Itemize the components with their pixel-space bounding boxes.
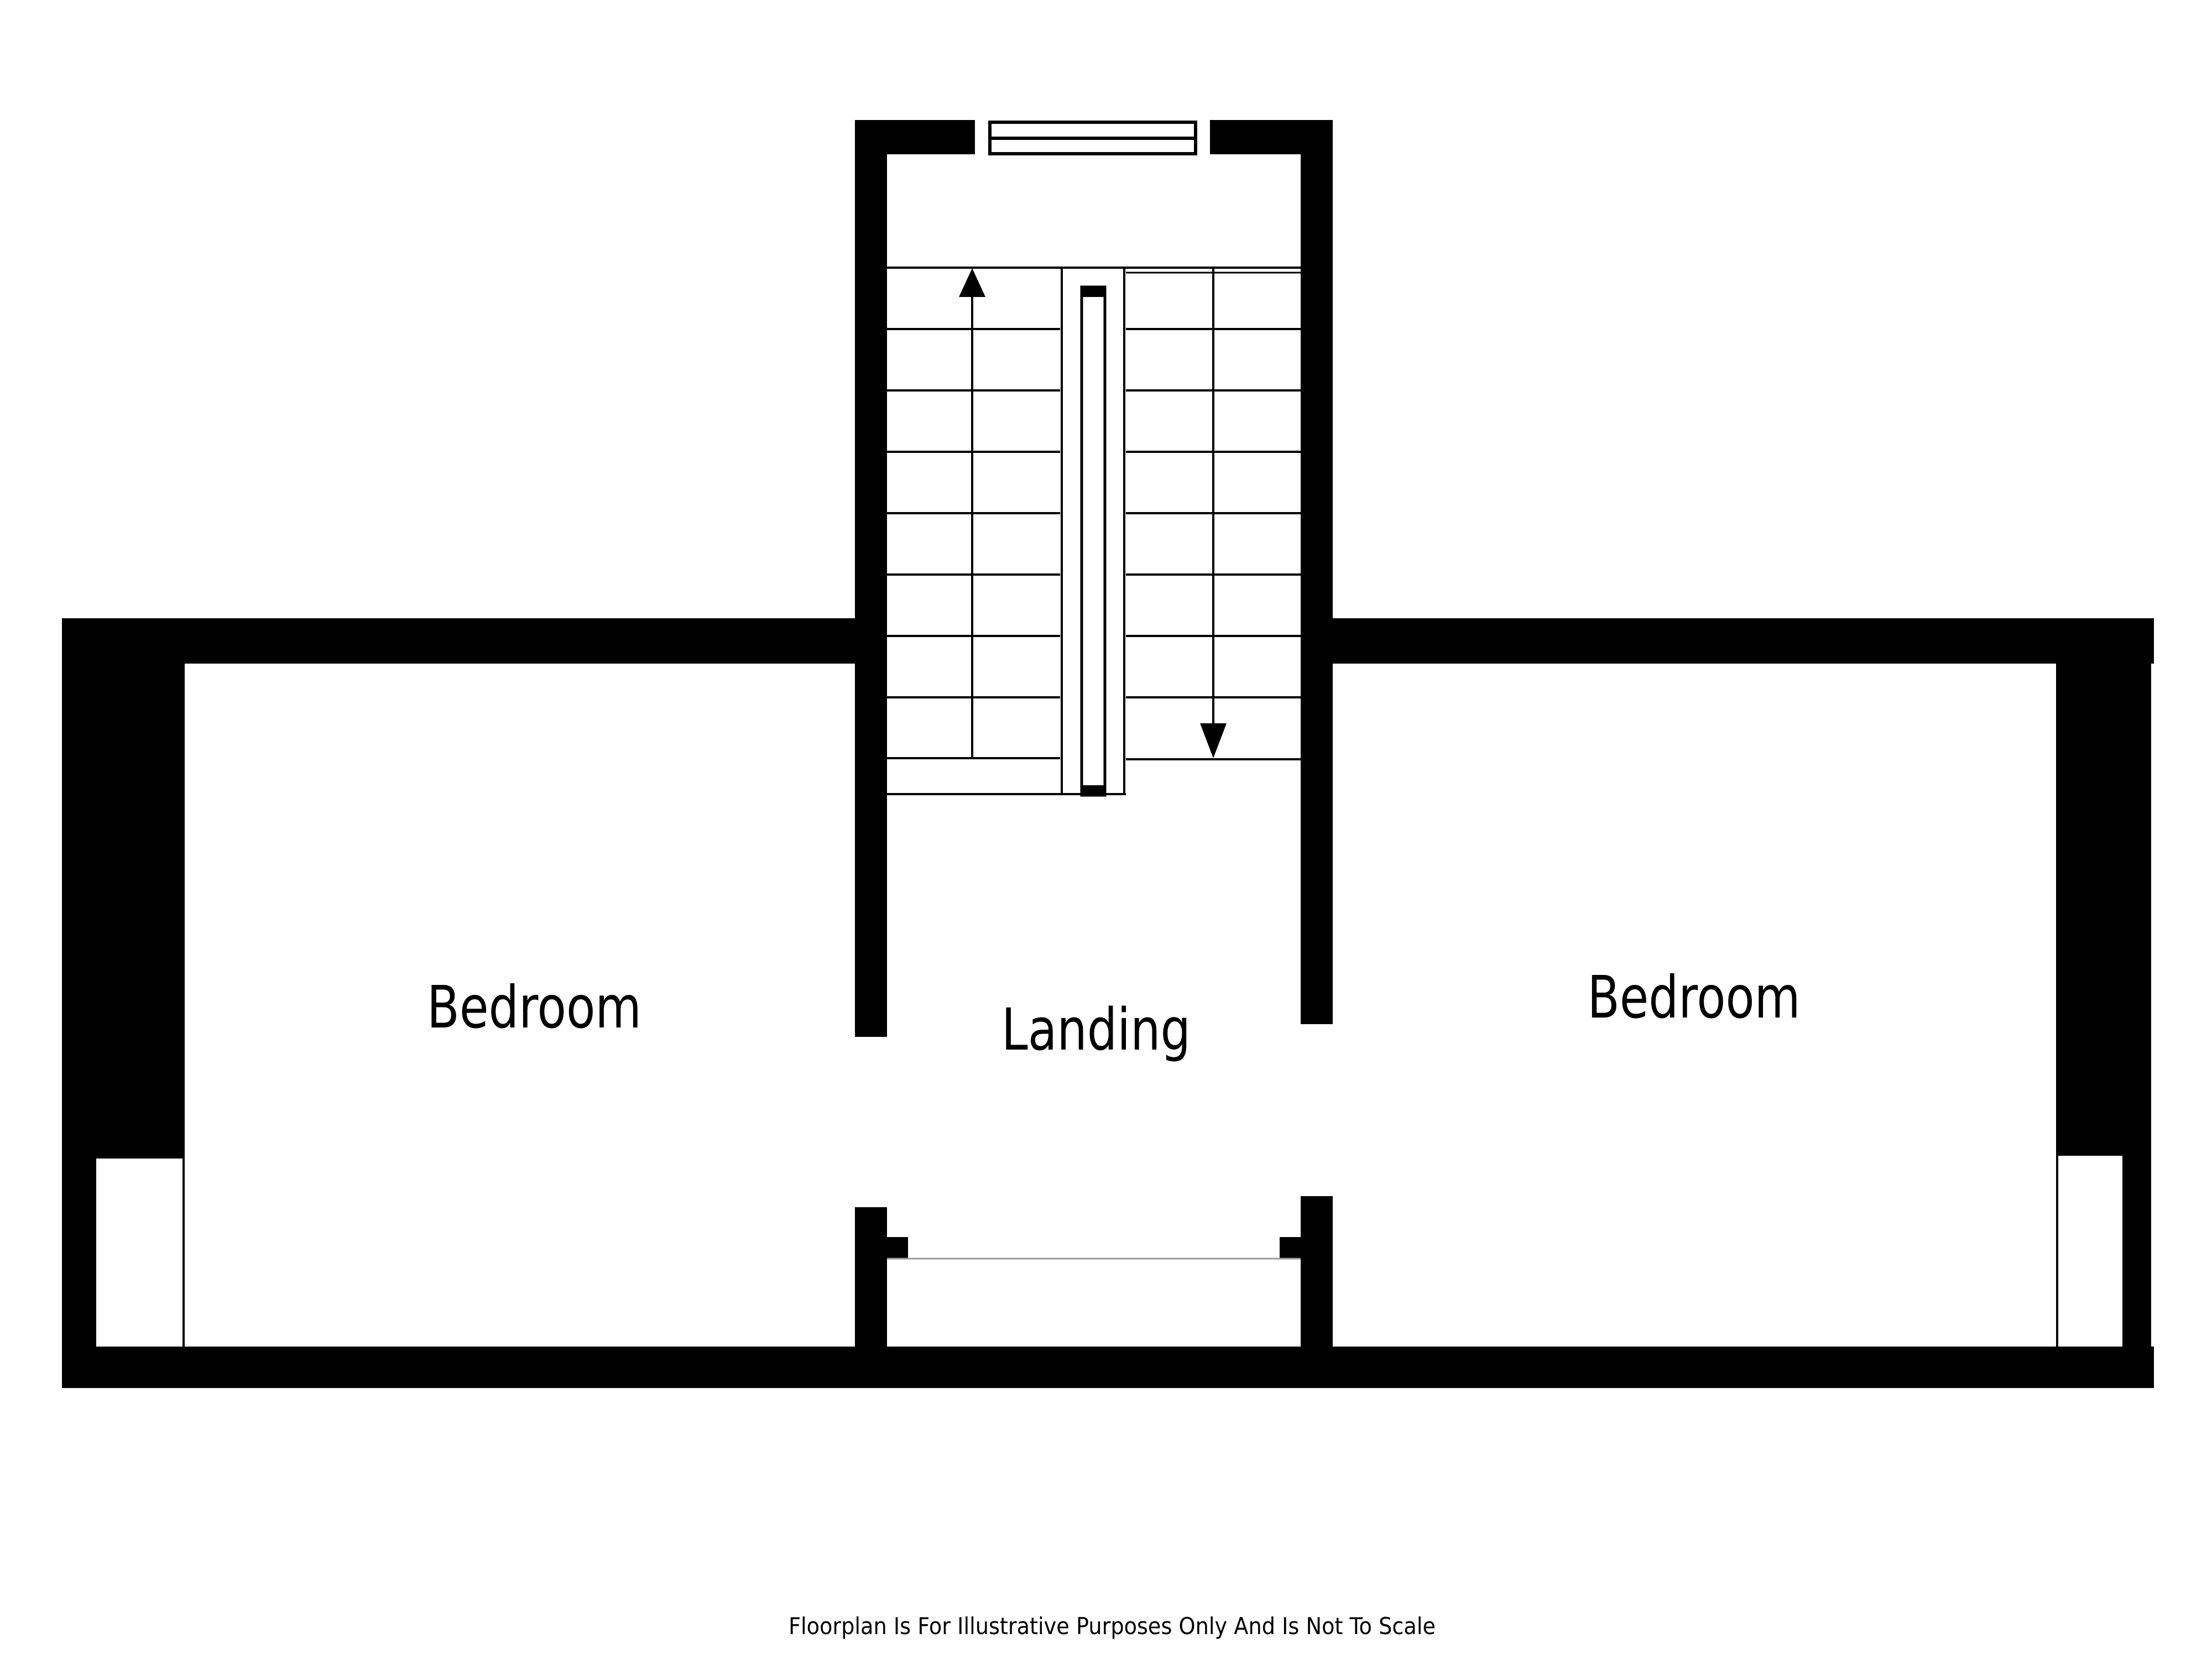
floorplan-canvas: Bedroom Landing Bedroom Floorplan Is For… [0, 0, 2212, 1659]
handrail-cap-top [1082, 287, 1105, 297]
door-jamb-tab-left [887, 1237, 908, 1259]
door-jamb-tab-right [1280, 1237, 1301, 1259]
floorplan: Bedroom Landing Bedroom Floorplan Is For… [0, 0, 2212, 1659]
handrail-cap-bottom [1082, 785, 1105, 795]
handrail [1082, 287, 1105, 795]
left-window-recess [96, 1159, 182, 1347]
right-window-recess [2058, 1156, 2122, 1347]
bottom-wall [62, 1347, 2154, 1388]
right-bedroom-door-opening [1301, 1024, 1333, 1196]
room-label-landing: Landing [1001, 996, 1191, 1063]
top-wall-right-segment [1333, 618, 2154, 664]
window-symbol [990, 122, 1196, 154]
room-label-bedroom-right: Bedroom [1588, 964, 1801, 1031]
room-label-bedroom-left: Bedroom [427, 974, 641, 1041]
left-bedroom-door-opening [855, 1037, 887, 1207]
canvas-background [0, 0, 2212, 1659]
page-background: Bedroom Landing Bedroom Floorplan Is For… [0, 0, 2212, 1659]
disclaimer-text: Floorplan Is For Illustrative Purposes O… [789, 1613, 1436, 1640]
